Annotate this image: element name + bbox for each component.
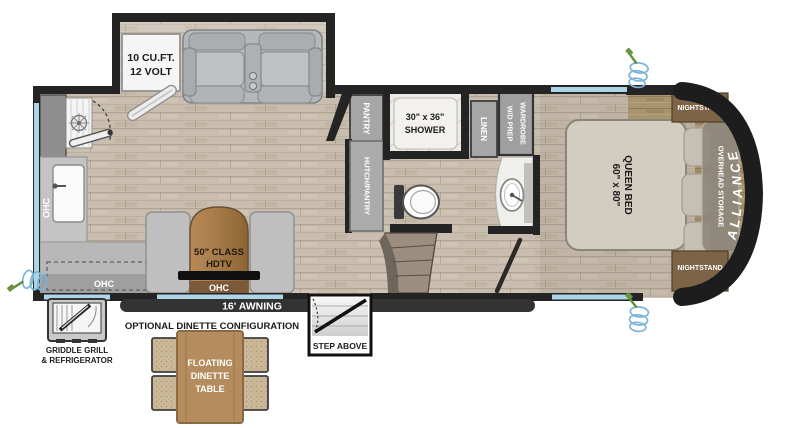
vanity-wall-right (533, 155, 540, 235)
fridge-label-line2: 12 VOLT (130, 66, 172, 78)
toilet-room-wall (390, 224, 452, 233)
interior-steps (379, 233, 437, 293)
dinette-label-line1: FLOATING (187, 358, 232, 368)
rv-floorplan: OHC OHC 50" CLASS HDTV OHC 10 CU.FT. 12 … (0, 0, 800, 428)
bedroom-wall-stub (488, 226, 540, 234)
shower-label-line1: 30" x 36" (406, 112, 445, 122)
dinette-label-line2: DINETTE (191, 371, 230, 381)
bed-label-line2: 60" x 80" (610, 164, 621, 207)
dinette-label-line3: TABLE (195, 384, 224, 394)
shower-label-line2: SHOWER (405, 125, 446, 135)
hutch-pantry-label: HUTCH/PANTRY (363, 157, 372, 215)
entertainment-center: 50" CLASS HDTV OHC (146, 207, 294, 293)
kitchen-sink (53, 165, 84, 222)
floorplan-canvas: OHC OHC 50" CLASS HDTV OHC 10 CU.FT. 12 … (0, 0, 800, 428)
toilet (394, 185, 439, 219)
dinette-chair (241, 338, 268, 372)
window-left (34, 103, 39, 289)
entry-step-box: STEP ABOVE (309, 295, 371, 355)
bed-label-line1: QUEEN BED (622, 155, 633, 214)
shower-wall-left (383, 93, 390, 160)
window-bottom-bedroom (552, 295, 628, 300)
tv-screen (178, 271, 260, 280)
vanity-backsplash (524, 163, 533, 223)
media-cabinet-right (250, 212, 294, 293)
dinette-chair (152, 376, 179, 410)
window-top-bedroom (551, 87, 627, 92)
fridge-label-line1: 10 CU.FT. (127, 52, 174, 64)
optional-dinette: OPTIONAL DINETTE CONFIGURATION FLOATING … (125, 321, 299, 423)
cupholder-icon (249, 82, 256, 89)
wardrobe-label-line1: WARDROBE (519, 102, 528, 145)
theater-seating (183, 30, 322, 103)
ohc-lower-label: OHC (94, 279, 115, 289)
ohc-left-label: OHC (42, 198, 52, 219)
shower-pan (394, 98, 457, 149)
shower-wall-bottom (383, 151, 461, 159)
wardrobe-label-line2: W/D PREP (506, 106, 515, 142)
griddle-label-line1: GRIDDLE GRILL (46, 346, 108, 355)
griddle-grill: GRIDDLE GRILL & REFRIGERATOR (41, 299, 112, 365)
utility-hose-icon (620, 47, 650, 89)
pantry-label: PANTRY (362, 103, 371, 136)
tv-label-line2: HDTV (206, 259, 233, 270)
dinette-chair (152, 338, 179, 372)
awning-label: 16' AWNING (222, 301, 282, 313)
corner-cabinet (40, 95, 66, 157)
front-cap-floor-top (628, 93, 674, 122)
window-bottom-living (157, 295, 283, 300)
shower-wall-right (461, 93, 469, 159)
media-cabinet-left (146, 212, 190, 293)
overhead-storage-label: OVERHEAD STORAGE (717, 146, 726, 228)
step-above-label: STEP ABOVE (313, 341, 368, 351)
cupholder-icon (249, 72, 256, 79)
nightstand-bottom-label: NIGHTSTAND (677, 265, 722, 272)
linen-label: LINEN (479, 117, 488, 141)
dinette-chair (241, 376, 268, 410)
tv-label-line1: 50" CLASS (194, 247, 244, 258)
griddle-label-line2: & REFRIGERATOR (41, 356, 112, 365)
ohc-tv-label: OHC (209, 283, 230, 293)
cooktop-burner-icon (69, 113, 89, 133)
